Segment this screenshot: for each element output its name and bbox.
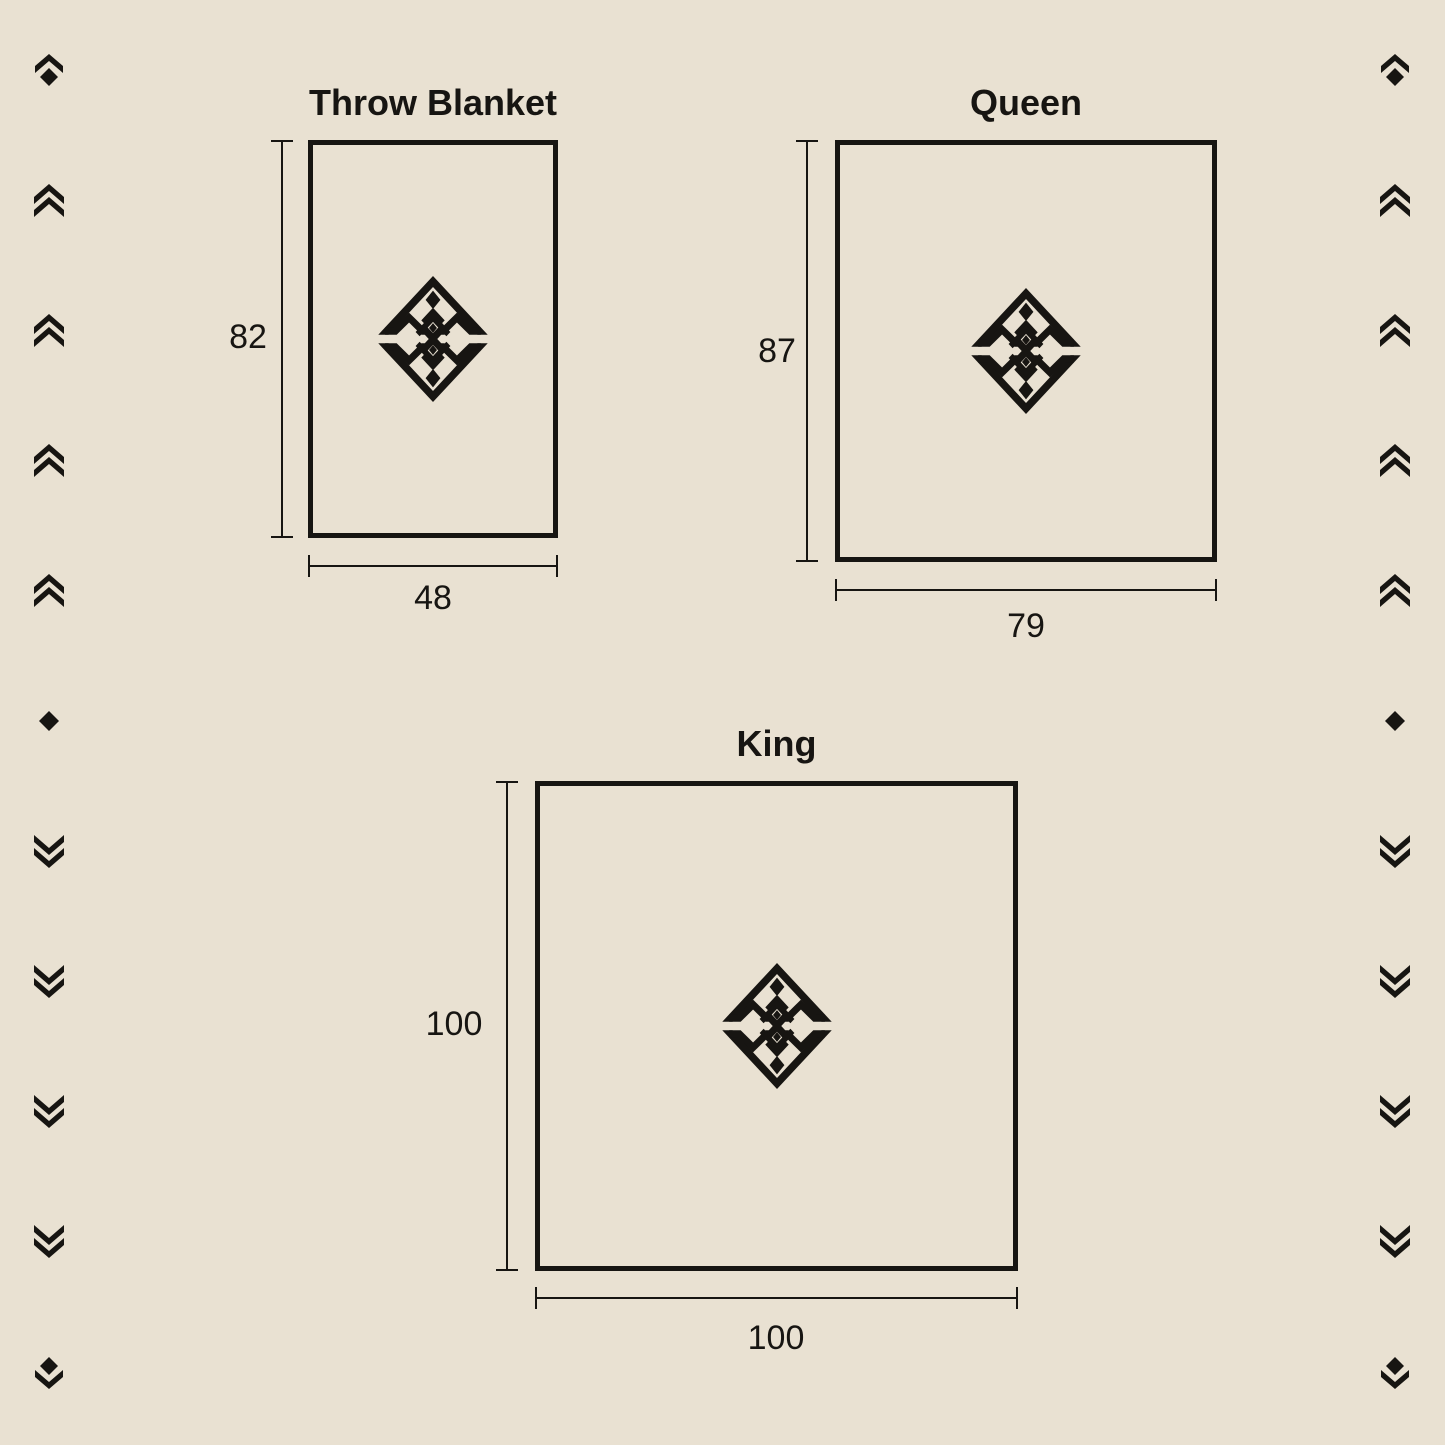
- height-value: 100: [404, 1003, 504, 1045]
- diamond-icon: [1385, 711, 1405, 731]
- brand-diamond-logo-icon: [376, 276, 490, 402]
- double-chevron-down-icon: [34, 835, 64, 868]
- width-value: 100: [726, 1317, 826, 1359]
- size-title: Queen: [835, 81, 1217, 125]
- dimension-end-cap: [1215, 579, 1217, 601]
- double-chevron-up-icon: [1380, 574, 1410, 607]
- double-chevron-up-icon: [34, 184, 64, 217]
- dimension-end-cap: [496, 1269, 518, 1271]
- chevron-up-diamond-icon: [35, 54, 63, 87]
- double-chevron-up-icon: [1380, 184, 1410, 217]
- double-chevron-down-icon: [1380, 1095, 1410, 1128]
- diamond-chevron-down-icon: [35, 1356, 63, 1389]
- height-value: 82: [208, 316, 288, 358]
- chevron-up-diamond-icon: [1381, 54, 1409, 87]
- double-chevron-up-icon: [34, 444, 64, 477]
- double-chevron-up-icon: [34, 574, 64, 607]
- double-chevron-down-icon: [34, 965, 64, 998]
- dimension-end-cap: [796, 140, 818, 142]
- dimension-end-cap: [835, 579, 837, 601]
- size-title: Throw Blanket: [308, 81, 558, 125]
- dimension-end-cap: [796, 560, 818, 562]
- dimension-end-cap: [556, 555, 558, 577]
- double-chevron-down-icon: [1380, 965, 1410, 998]
- dimension-end-cap: [496, 781, 518, 783]
- dimension-end-cap: [308, 555, 310, 577]
- width-dimension-line: [835, 589, 1217, 591]
- dimension-end-cap: [535, 1287, 537, 1309]
- double-chevron-up-icon: [34, 314, 64, 347]
- blanket-outline: [308, 140, 558, 538]
- double-chevron-up-icon: [1380, 314, 1410, 347]
- width-dimension-line: [308, 565, 558, 567]
- double-chevron-down-icon: [34, 1225, 64, 1258]
- brand-diamond-logo-icon: [720, 963, 834, 1089]
- brand-diamond-logo-icon: [969, 288, 1083, 414]
- blanket-outline: [535, 781, 1018, 1271]
- diamond-chevron-down-icon: [1381, 1356, 1409, 1389]
- double-chevron-down-icon: [34, 1095, 64, 1128]
- diamond-icon: [39, 711, 59, 731]
- dimension-end-cap: [1016, 1287, 1018, 1309]
- double-chevron-down-icon: [1380, 1225, 1410, 1258]
- dimension-end-cap: [271, 536, 293, 538]
- width-value: 79: [976, 605, 1076, 647]
- height-dimension-line: [506, 781, 508, 1271]
- double-chevron-down-icon: [1380, 835, 1410, 868]
- height-value: 87: [737, 330, 817, 372]
- size-title: King: [535, 722, 1018, 766]
- blanket-outline: [835, 140, 1217, 562]
- width-value: 48: [383, 577, 483, 619]
- width-dimension-line: [535, 1297, 1018, 1299]
- double-chevron-up-icon: [1380, 444, 1410, 477]
- dimension-end-cap: [271, 140, 293, 142]
